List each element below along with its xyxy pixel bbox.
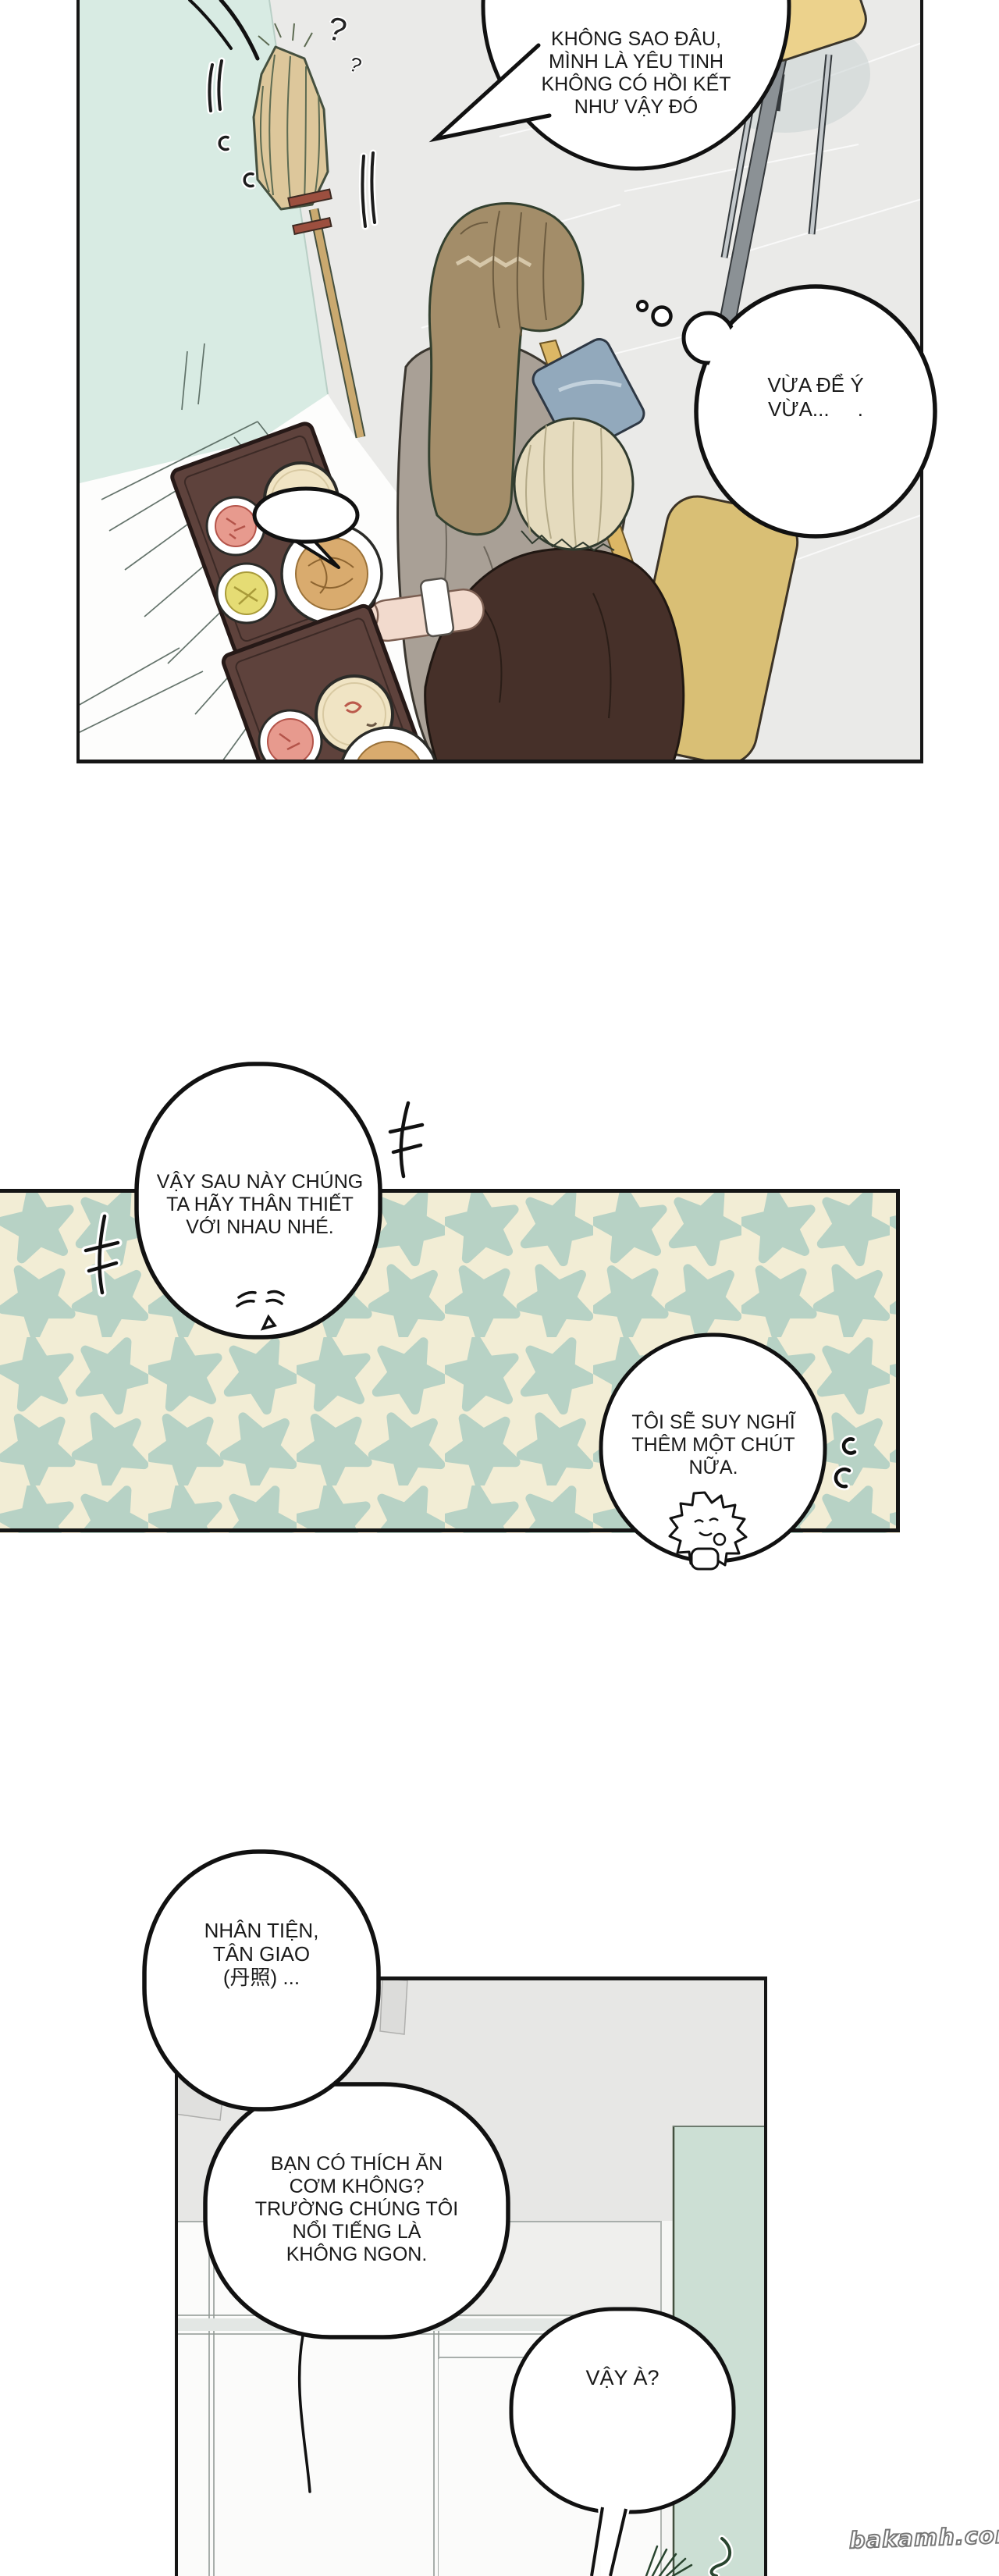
panel3-bubble-small-text: VẬY À? [511, 2367, 734, 2389]
speech-bubble-top-text: KHÔNG SAO ĐÂU, MÌNH LÀ YÊU TINH KHÔNG CÓ… [486, 28, 786, 119]
site-watermark: bakamh.com [848, 2522, 997, 2564]
thought-bubble-text: VỪA ĐỂ Ý VỪA... . [702, 373, 929, 422]
panel3-bubble-top-text: NHÂN TIỆN, TÂN GIAO (丹照) ... [148, 1919, 375, 1989]
thought-dot-large [653, 308, 671, 326]
panel2-bubble-left-text: VẬY SAU NÀY CHÚNG TA HÃY THÂN THIẾT VỚI … [143, 1171, 377, 1239]
panel2-bubble-right-text: TÔI SẼ SUY NGHĨ THÊM MỘT CHÚT NỮA. [599, 1411, 827, 1479]
wall-panel-shape [380, 1979, 407, 2034]
thought-dot-small [638, 301, 647, 311]
comic-page: KHÔNG SAO ĐÂU, MÌNH LÀ YÊU TINH KHÔNG CÓ… [0, 0, 999, 2576]
panel3-bubble-mid-text: BẠN CÓ THÍCH ĂN CƠM KHÔNG? TRƯỜNG CHÚNG … [207, 2153, 507, 2266]
